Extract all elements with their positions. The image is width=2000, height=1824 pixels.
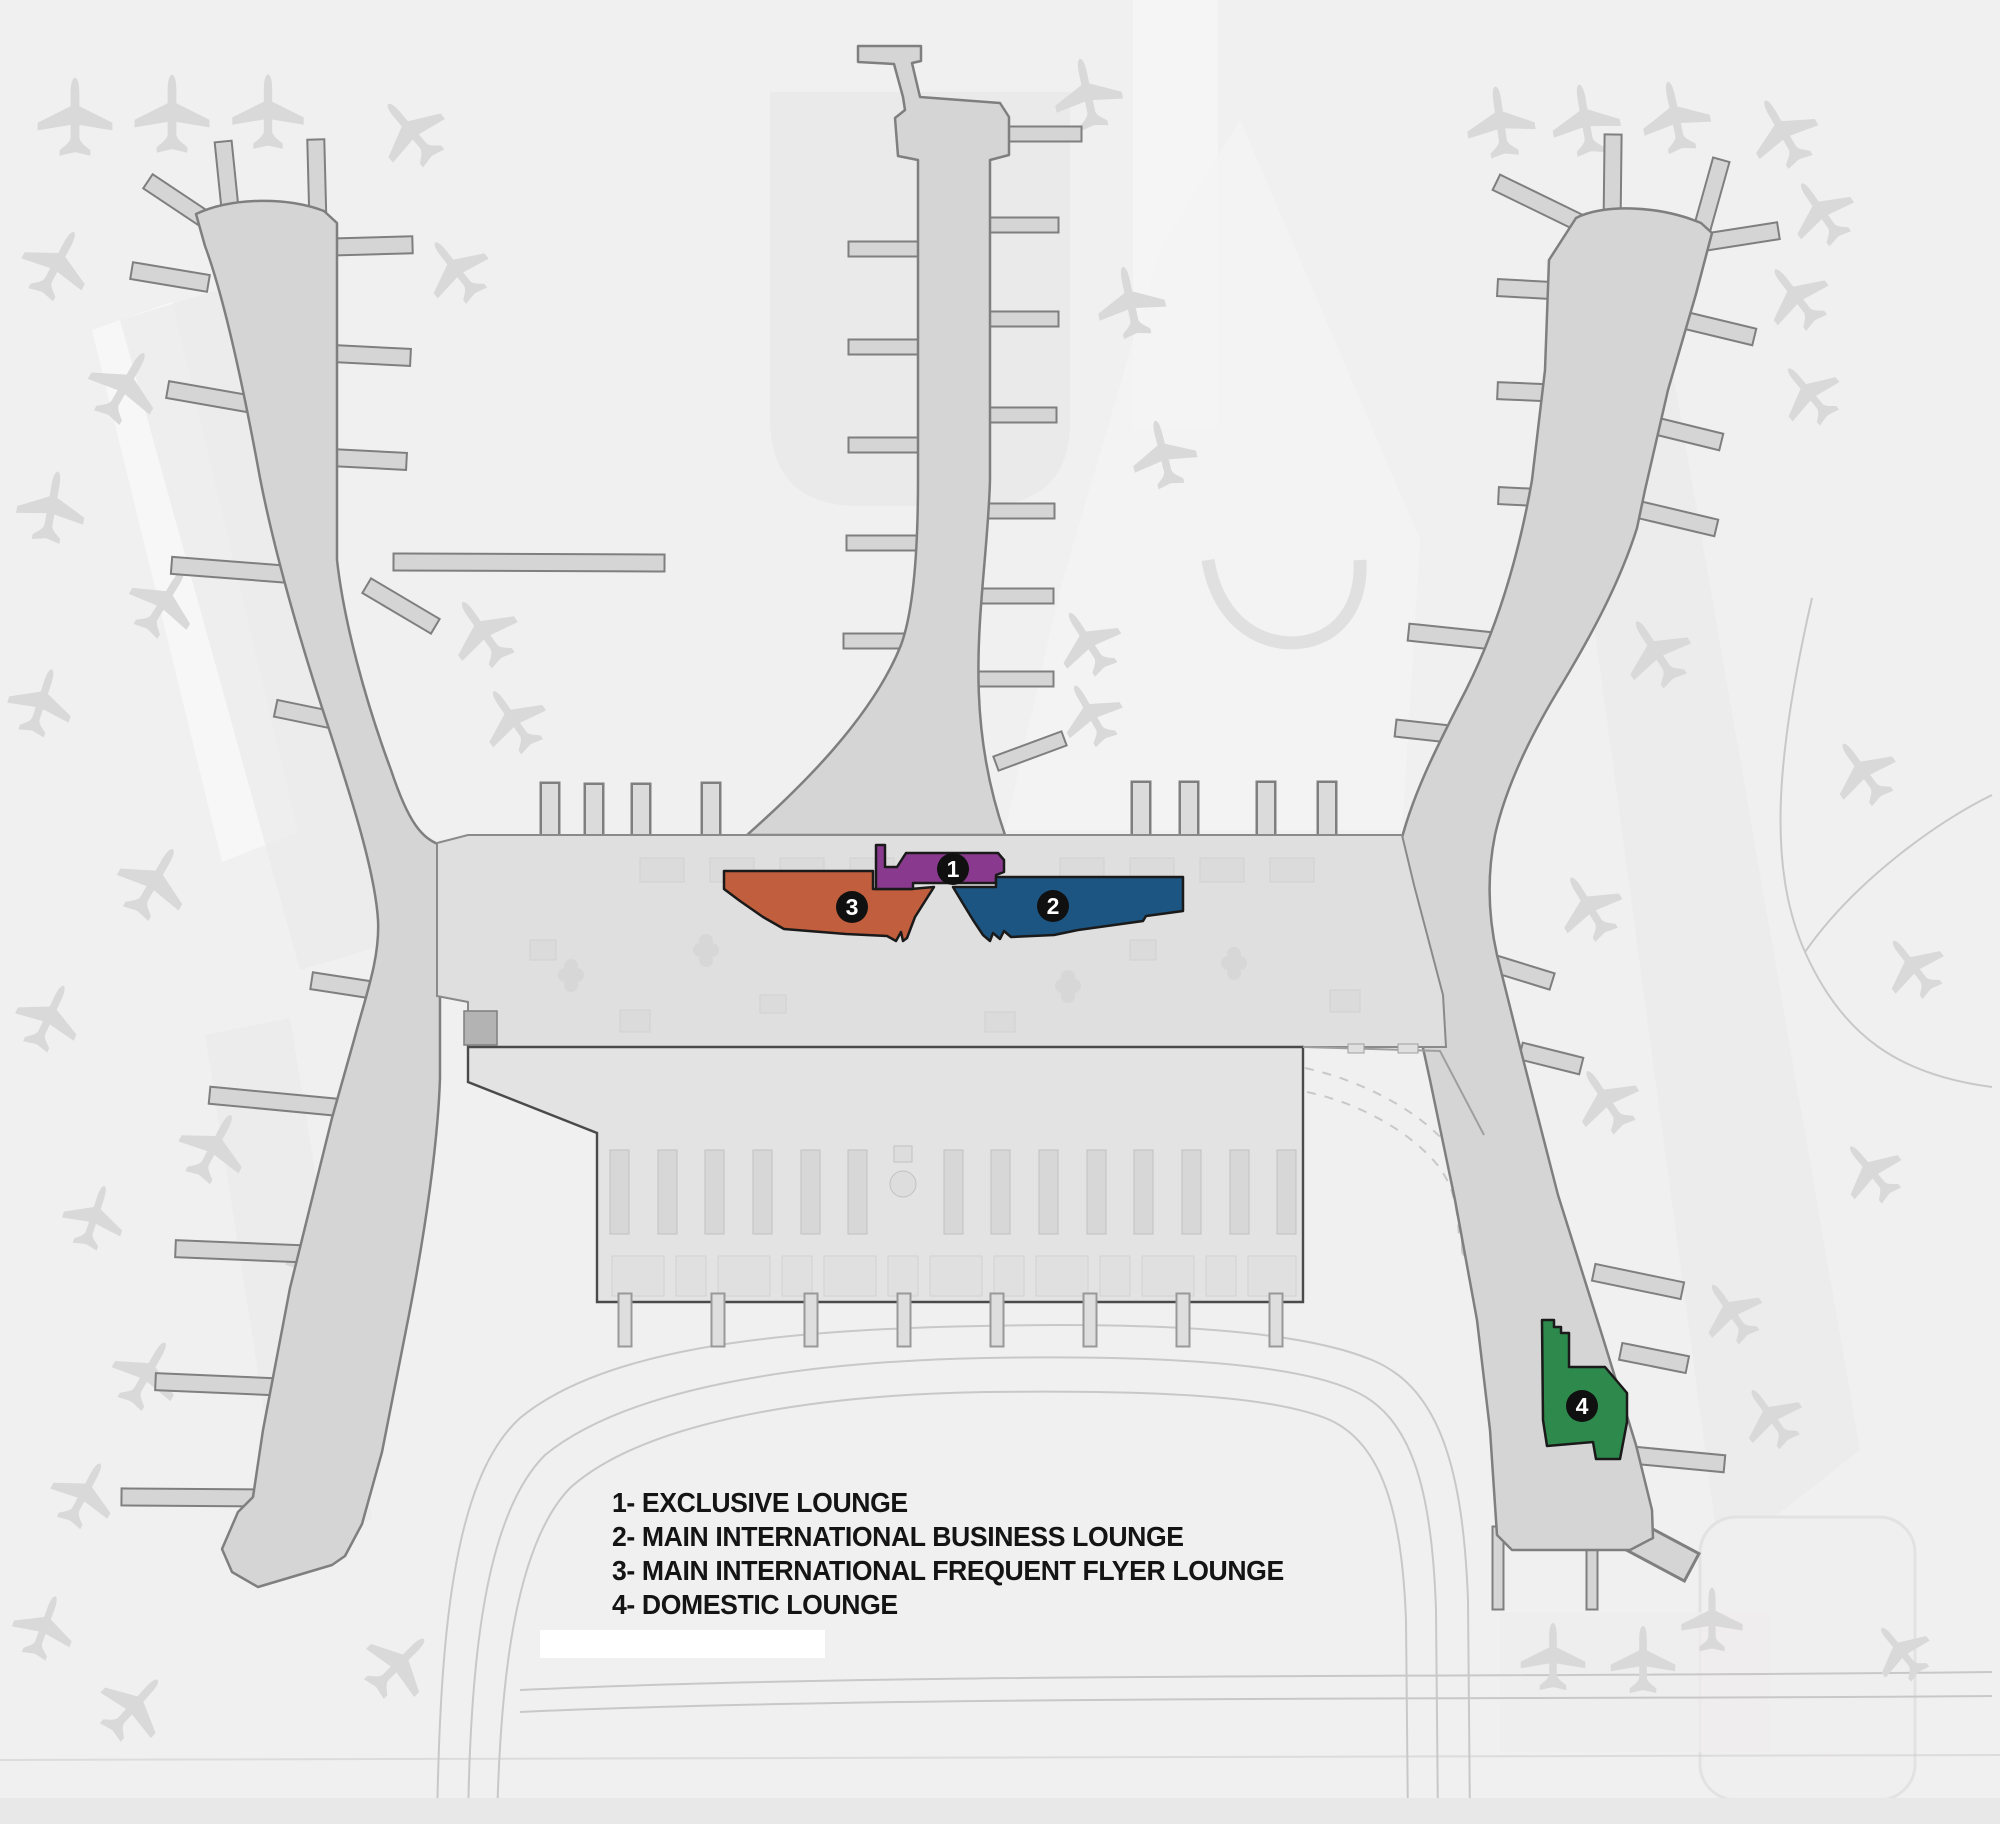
airplane-icon	[1765, 349, 1853, 437]
airplane-icon	[232, 74, 303, 149]
blank-patch	[540, 1630, 825, 1658]
hall-rotunda	[890, 1171, 916, 1197]
airplane-icon	[38, 78, 113, 156]
badge-3: 3	[836, 891, 868, 923]
airplane-icon	[1635, 75, 1716, 159]
airplane-icon	[1827, 1127, 1915, 1215]
airport-map: 1 2 3 4 1- EXCLUSIVE LOUNGE 2- MAIN INTE…	[0, 0, 2000, 1824]
airplane-icon	[56, 1176, 134, 1256]
badge-1: 1	[937, 853, 969, 885]
bottom-road-band	[0, 1798, 2000, 1824]
airplane-icon	[1775, 165, 1867, 257]
airplane-icon	[350, 1615, 448, 1713]
airplane-icon	[1543, 860, 1634, 951]
airplane-icon	[0, 659, 82, 743]
badge-4-number: 4	[1576, 1393, 1589, 1419]
airplane-icon	[40, 1448, 129, 1538]
airplane-icon	[435, 583, 531, 680]
airplane-icon	[362, 82, 460, 180]
badge-3-number: 3	[846, 894, 859, 920]
legend-item-1: 1- EXCLUSIVE LOUNGE	[612, 1486, 1284, 1520]
legend-item-4: 4- DOMESTIC LOUNGE	[612, 1588, 1284, 1622]
airplane-icon	[85, 1657, 183, 1755]
airplane-icon	[467, 673, 559, 765]
airplane-icon	[1750, 250, 1842, 343]
airplane-icon	[135, 75, 210, 153]
badge-2: 2	[1037, 890, 1069, 922]
road-interchange-2	[1805, 795, 1992, 952]
legend: 1- EXCLUSIVE LOUNGE 2- MAIN INTERNATIONA…	[612, 1486, 1284, 1622]
airplane-icon	[11, 216, 104, 311]
airplane-icon	[12, 466, 91, 548]
airplane-icon	[5, 1586, 84, 1667]
airplane-icon	[1736, 84, 1830, 179]
airplane-icon	[1869, 922, 1957, 1010]
airplane-icon	[1817, 725, 1909, 818]
checkin-islands	[610, 1146, 1296, 1234]
badge-4: 4	[1566, 1390, 1598, 1422]
legend-item-3: 3- MAIN INTERNATIONAL FREQUENT FLYER LOU…	[612, 1554, 1284, 1588]
airplane-icon	[105, 831, 204, 931]
airplane-icon	[1462, 82, 1539, 162]
road-interchange-1	[1781, 598, 1992, 1087]
airplane-icon	[6, 972, 93, 1060]
curbside-columns	[625, 1300, 1276, 1340]
legend-item-2: 2- MAIN INTERNATIONAL BUSINESS LOUNGE	[612, 1520, 1284, 1554]
hall-kiosk	[894, 1146, 912, 1162]
piers	[196, 46, 1712, 1587]
badge-2-number: 2	[1047, 893, 1060, 919]
airplane-icon	[410, 223, 502, 316]
bus-gate-square	[464, 1011, 497, 1045]
badge-1-number: 1	[947, 856, 960, 882]
